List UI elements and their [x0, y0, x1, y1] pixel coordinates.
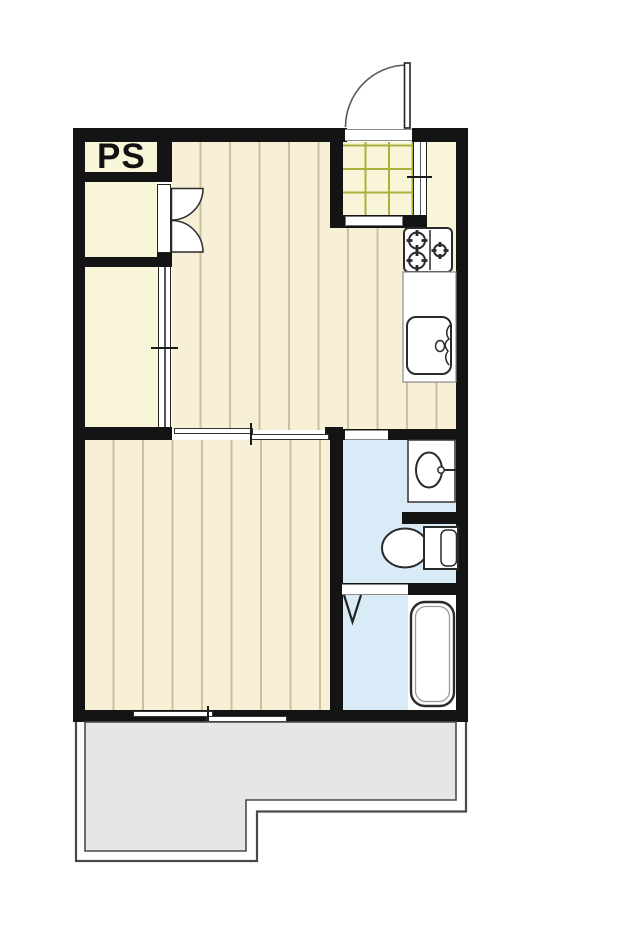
wall [330, 128, 343, 227]
pipe-shaft-label: PS [97, 142, 146, 172]
entrance-opening [345, 129, 412, 141]
sliding-window-panel [133, 711, 213, 717]
wall [456, 128, 468, 722]
entry-tile-floor [343, 142, 413, 215]
sliding-window-panel [206, 716, 287, 722]
washroom-opening [345, 430, 388, 440]
wall [73, 128, 85, 722]
bathroom-floor [343, 595, 408, 710]
sliding-door-panel [174, 428, 253, 434]
bathtub-area [408, 595, 456, 710]
room-shoe-storage [427, 142, 456, 228]
room-closet-lower [85, 267, 158, 427]
door-tick [250, 423, 252, 445]
closet-door-jamb [157, 184, 171, 253]
door-tick [151, 347, 178, 349]
toilet-privacy-wall [402, 512, 456, 524]
balcony [76, 722, 466, 861]
floor-plan: PS [0, 0, 640, 926]
room-main-floor [85, 440, 330, 710]
window-tick [207, 706, 209, 726]
bathroom-opening [342, 584, 408, 595]
door-line [420, 142, 421, 215]
entry-step [345, 216, 403, 226]
wall [73, 427, 172, 440]
wall [330, 427, 343, 722]
entry-storage-door [413, 142, 427, 215]
wall [411, 215, 427, 228]
entrance-door [346, 63, 411, 128]
room-closet-upper [85, 182, 157, 257]
sliding-door-panel [251, 434, 329, 440]
door-tick [407, 176, 432, 178]
